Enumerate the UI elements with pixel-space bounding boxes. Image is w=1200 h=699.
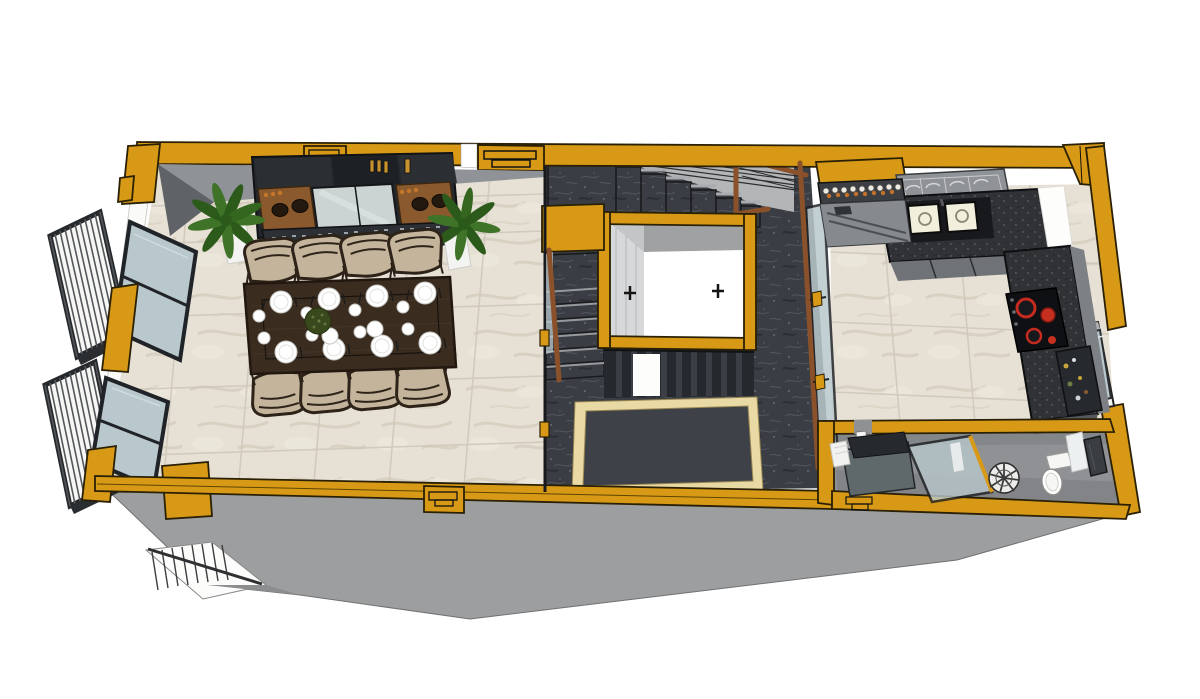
lower-floor-view: [644, 250, 744, 338]
staircase-down-flight: [604, 350, 754, 398]
floor-rug: [572, 397, 763, 495]
table-centerpiece: [305, 308, 331, 334]
screenshot-root: [0, 0, 1200, 699]
dining-set: [244, 229, 456, 417]
stairwell-void: [598, 212, 756, 350]
burner: [1027, 329, 1041, 343]
round-fan-basin: [989, 463, 1019, 493]
wall-column: [82, 446, 116, 502]
burner: [1017, 299, 1035, 317]
top-wall-opening: [461, 144, 477, 168]
kitchen-sink-basin: [908, 204, 941, 234]
cooktop: [1006, 288, 1068, 352]
burner: [1048, 336, 1056, 344]
side-counter: [820, 200, 911, 247]
rolled-towel: [830, 441, 850, 467]
faucet: [941, 199, 943, 206]
stair-half-wall: [542, 204, 604, 252]
bath-bench: [842, 432, 915, 496]
kitchen-sink-basin: [945, 202, 978, 232]
burner: [1041, 308, 1055, 322]
floorplan-render: [0, 0, 1200, 699]
